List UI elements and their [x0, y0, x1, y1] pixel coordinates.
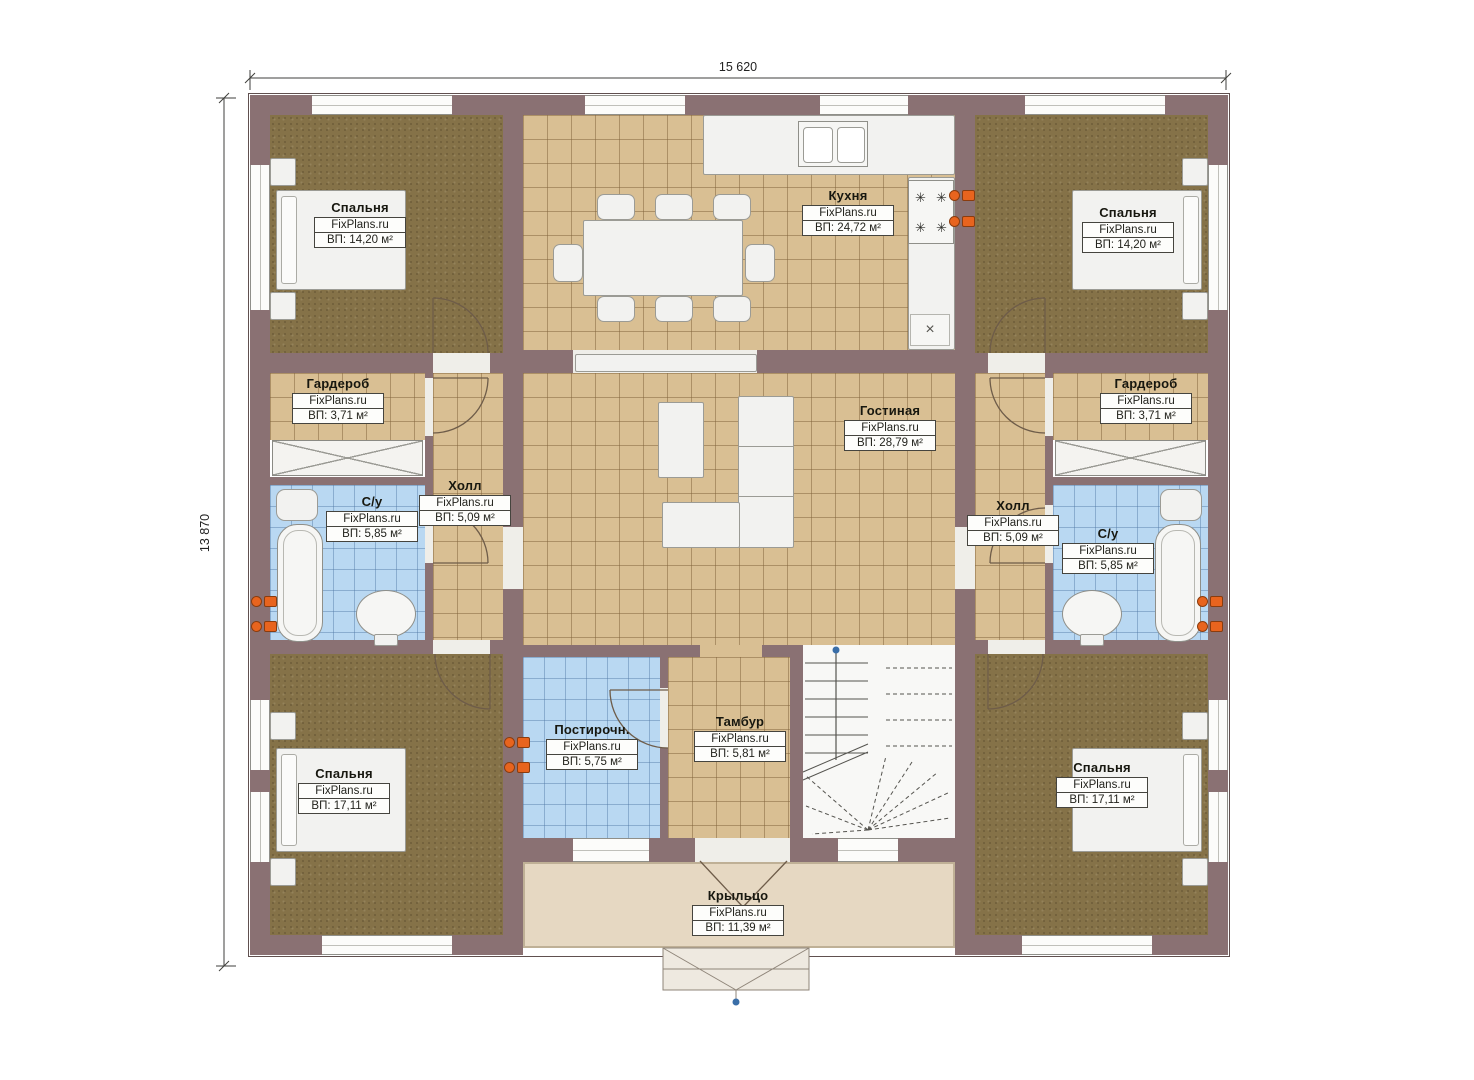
wall-porch-left [503, 838, 523, 948]
radiator-icon [1197, 596, 1223, 607]
window-bottom-2 [1022, 935, 1152, 955]
chair [553, 244, 583, 282]
nightstand [1182, 292, 1208, 320]
washbasin-left [356, 590, 416, 638]
washbasin-base [374, 634, 398, 646]
wall-living-bottom-1 [523, 645, 700, 657]
window-stairs-porch [838, 838, 898, 862]
wall-wardrobe-bath-left [270, 477, 425, 485]
room-label-bedroom-top-right: Спальня FixPlans.ru ВП: 14,20 м² [1082, 205, 1174, 253]
door-opening-wardrobe-left [425, 378, 433, 436]
room-label-bathroom-right: С/у FixPlans.ru ВП: 5,85 м² [1062, 526, 1154, 574]
nightstand [270, 712, 296, 740]
room-label-wardrobe-right: Гардероб FixPlans.ru ВП: 3,71 м² [1100, 376, 1192, 424]
room-name: Крыльцо [708, 888, 769, 903]
room-name: Спальня [331, 200, 389, 215]
brand-box: FixPlans.ru [292, 393, 384, 409]
window-top-4 [1025, 95, 1165, 115]
wall-left-wing [503, 115, 523, 838]
tv-cabinet [575, 354, 757, 372]
room-name: Холл [448, 478, 481, 493]
chair [655, 296, 693, 322]
brand-box: FixPlans.ru [967, 515, 1059, 531]
room-label-bedroom-top-left: Спальня FixPlans.ru ВП: 14,20 м² [314, 200, 406, 248]
area-box: ВП: 28,79 м² [844, 435, 936, 451]
porch-steps [663, 948, 809, 1002]
room-label-living-room: Гостиная FixPlans.ru ВП: 28,79 м² [844, 403, 936, 451]
appliance-x-marker: × [910, 314, 950, 346]
brand-box: FixPlans.ru [298, 783, 390, 799]
wall-wardrobe-bath-right [1053, 477, 1208, 485]
brand-box: FixPlans.ru [546, 739, 638, 755]
pillow [1183, 754, 1199, 846]
window-top-2 [585, 95, 685, 115]
door-opening-bedroom-tr [988, 353, 1045, 373]
radiator-icon [251, 621, 277, 632]
area-box: ВП: 3,71 м² [1100, 408, 1192, 424]
dining-table [583, 220, 743, 296]
entrance-door-opening [695, 838, 790, 862]
burner-icon: ✳ [915, 221, 926, 234]
chair [597, 194, 635, 220]
radiator-icon [949, 190, 975, 201]
closet-left [272, 440, 423, 476]
washbasin-base [1080, 634, 1104, 646]
room-label-laundry: Постирочн. FixPlans.ru ВП: 5,75 м² [546, 722, 638, 770]
room-name: Спальня [1099, 205, 1157, 220]
room-name: Гостиная [860, 403, 920, 418]
pillow [1183, 196, 1199, 284]
room-name: Гардероб [306, 376, 369, 391]
window-right-3 [1208, 792, 1228, 862]
radiator-icon [251, 596, 277, 607]
room-name: Кухня [829, 188, 868, 203]
brand-box: FixPlans.ru [1056, 777, 1148, 793]
brand-box: FixPlans.ru [314, 217, 406, 233]
door-opening-bedroom-br [988, 640, 1045, 654]
wall-vestibule-stairs [790, 657, 803, 838]
brand-box: FixPlans.ru [844, 420, 936, 436]
room-label-kitchen: Кухня FixPlans.ru ВП: 24,72 м² [802, 188, 894, 236]
kitchen-sink [798, 121, 868, 167]
wall-porch-right [955, 838, 975, 948]
room-label-porch: Крыльцо FixPlans.ru ВП: 11,39 м² [692, 888, 784, 936]
floor-plan-canvas: ✳✳✳✳ × [0, 0, 1474, 1080]
chair [597, 296, 635, 322]
nightstand [1182, 712, 1208, 740]
window-left-3 [250, 792, 270, 862]
bath-shelf [1160, 489, 1202, 521]
sofa-cushion-line [739, 496, 793, 497]
door-opening-bedroom-bl [433, 640, 490, 654]
bathtub-left [277, 524, 323, 642]
porch-step-marker [733, 999, 740, 1006]
closet-right [1055, 440, 1206, 476]
nightstand [1182, 858, 1208, 886]
radiator-icon [504, 737, 530, 748]
area-box: ВП: 5,09 м² [419, 510, 511, 526]
chair [713, 296, 751, 322]
room-name: Гардероб [1114, 376, 1177, 391]
pillow [281, 754, 297, 846]
area-box: ВП: 14,20 м² [1082, 237, 1174, 253]
window-top-3 [820, 95, 908, 115]
side-table [658, 402, 704, 478]
sink-basin [803, 127, 833, 163]
wall-kitchen-living-2 [757, 350, 955, 373]
area-box: ВП: 5,09 м² [967, 530, 1059, 546]
bathtub-right [1155, 524, 1201, 642]
window-left-1 [250, 165, 270, 310]
room-label-bathroom-left: С/у FixPlans.ru ВП: 5,85 м² [326, 494, 418, 542]
room-label-bedroom-bottom-left: Спальня FixPlans.ru ВП: 17,11 м² [298, 766, 390, 814]
brand-box: FixPlans.ru [1062, 543, 1154, 559]
area-box: ВП: 5,85 м² [1062, 558, 1154, 574]
stove-icon: ✳✳✳✳ [908, 180, 954, 244]
area-box: ВП: 11,39 м² [692, 920, 784, 936]
window-right-2 [1208, 700, 1228, 770]
room-name: Постирочн. [554, 722, 629, 737]
brand-box: FixPlans.ru [419, 495, 511, 511]
room-name: Спальня [315, 766, 373, 781]
room-label-vestibule: Тамбур FixPlans.ru ВП: 5,81 м² [694, 714, 786, 762]
pillow [281, 196, 297, 284]
chair [713, 194, 751, 220]
room-label-wardrobe-left: Гардероб FixPlans.ru ВП: 3,71 м² [292, 376, 384, 424]
window-top-1 [312, 95, 452, 115]
chair [745, 244, 775, 282]
nightstand [270, 292, 296, 320]
brand-box: FixPlans.ru [1100, 393, 1192, 409]
room-name: Холл [996, 498, 1029, 513]
dimension-height-label: 13 870 [198, 514, 212, 552]
area-box: ВП: 17,11 м² [1056, 792, 1148, 808]
area-box: ВП: 5,75 м² [546, 754, 638, 770]
room-label-bedroom-bottom-right: Спальня FixPlans.ru ВП: 17,11 м² [1056, 760, 1148, 808]
window-left-2 [250, 700, 270, 770]
opening-living-vestibule [700, 645, 762, 657]
area-box: ВП: 5,81 м² [694, 746, 786, 762]
burner-icon: ✳ [936, 221, 947, 234]
burner-icon: ✳ [936, 191, 947, 204]
room-name: С/у [362, 494, 383, 509]
sofa-cushion-line [739, 446, 793, 447]
window-bottom-1 [322, 935, 452, 955]
door-opening-wardrobe-right [1045, 378, 1053, 436]
sink-basin [837, 127, 865, 163]
bath-shelf [276, 489, 318, 521]
nightstand [270, 158, 296, 186]
room-label-hall-right: Холл FixPlans.ru ВП: 5,09 м² [967, 498, 1059, 546]
door-opening-laundry [660, 688, 668, 748]
brand-box: FixPlans.ru [326, 511, 418, 527]
brand-box: FixPlans.ru [694, 731, 786, 747]
dimension-width-label: 15 620 [719, 60, 757, 74]
room-name: Спальня [1073, 760, 1131, 775]
nightstand [270, 858, 296, 886]
radiator-icon [504, 762, 530, 773]
room-name: Тамбур [716, 714, 764, 729]
room-label-hall-left: Холл FixPlans.ru ВП: 5,09 м² [419, 478, 511, 526]
radiator-icon [949, 216, 975, 227]
burner-icon: ✳ [915, 191, 926, 204]
nightstand [1182, 158, 1208, 186]
door-opening-bedroom-tl [433, 353, 490, 373]
radiator-icon [1197, 621, 1223, 632]
area-box: ВП: 24,72 м² [802, 220, 894, 236]
brand-box: FixPlans.ru [692, 905, 784, 921]
opening-hall-left-living [503, 527, 523, 589]
area-box: ВП: 17,11 м² [298, 798, 390, 814]
window-laundry-porch [573, 838, 649, 862]
area-box: ВП: 3,71 м² [292, 408, 384, 424]
area-box: ВП: 5,85 м² [326, 526, 418, 542]
room-name: С/у [1098, 526, 1119, 541]
chair [655, 194, 693, 220]
sofa-chaise [662, 502, 740, 548]
washbasin-right [1062, 590, 1122, 638]
area-box: ВП: 14,20 м² [314, 232, 406, 248]
brand-box: FixPlans.ru [1082, 222, 1174, 238]
brand-box: FixPlans.ru [802, 205, 894, 221]
sofa [738, 396, 794, 548]
floor-stairwell [803, 645, 955, 838]
window-right-1 [1208, 165, 1228, 310]
wall-living-bottom-2 [762, 645, 803, 657]
wall-kitchen-living-1 [523, 350, 573, 373]
